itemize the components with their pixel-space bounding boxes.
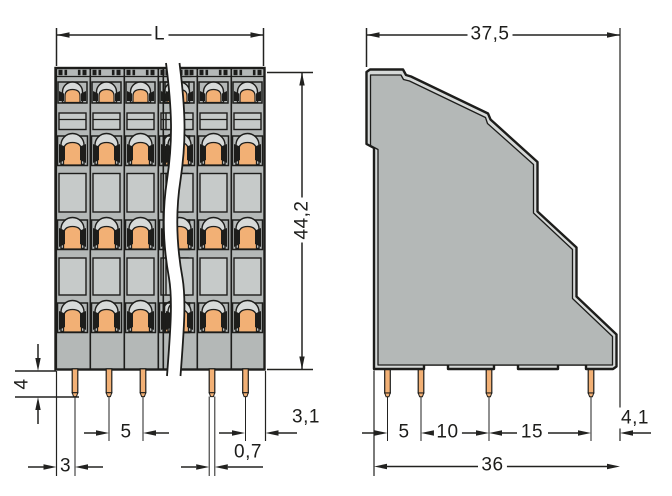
drawing-linework <box>0 0 672 496</box>
dim-label-pin-length: 4 <box>12 375 33 392</box>
dim-label-side-edge-right: 4,1 <box>618 408 652 429</box>
dim-label-side-pitch-c: 15 <box>518 422 546 443</box>
side-view <box>367 70 617 397</box>
dim-label-side-pitch-b: 10 <box>433 422 461 443</box>
front-view <box>56 63 265 397</box>
terminal-block-dimensional-drawing: L 44,2 4 5 3 0,7 3,1 37,5 5 10 15 4,1 36 <box>0 0 672 496</box>
front-pins <box>72 369 248 397</box>
dim-label-depth: 37,5 <box>468 24 513 45</box>
dim-label-edge-to-pin: 3 <box>57 456 74 477</box>
dim-label-length: L <box>151 24 168 45</box>
dim-label-front-edge-right: 3,1 <box>289 407 323 428</box>
dim-label-overall-bottom: 36 <box>478 455 506 476</box>
dim-label-front-pitch: 5 <box>117 422 134 443</box>
dim-label-side-pitch-a: 5 <box>395 422 412 443</box>
side-pins <box>385 367 594 397</box>
dim-label-height: 44,2 <box>292 198 313 243</box>
dim-label-pin-width: 0,7 <box>231 442 265 463</box>
